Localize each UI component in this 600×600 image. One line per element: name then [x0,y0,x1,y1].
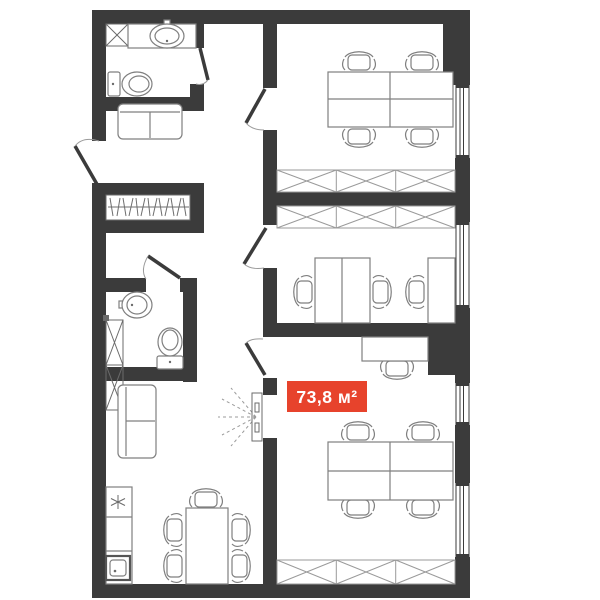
sink-icon [119,292,152,318]
desk-icon [428,258,455,323]
wall-divider-2 [263,130,277,225]
door-to-office-bottom-icon [246,339,265,375]
door-icon [196,48,208,85]
wall-corner-bottom-right [455,557,470,598]
wardrobe-rail-icon [106,195,190,220]
wall-office-top-mid [277,192,455,206]
sofa-icon [118,385,156,458]
desk-cluster-icon [328,442,453,500]
chair-icon [343,129,376,147]
wall-divider-1 [263,24,277,88]
shelving-icon [277,560,455,584]
corner-desk-icon [362,337,428,361]
wall-divider-4 [263,378,277,395]
sofa-icon [118,104,182,139]
chair-icon [164,550,182,583]
door-icon [143,256,180,279]
chair-icon [373,276,391,309]
dining-set [164,489,251,584]
chair-icon [406,52,439,70]
kitchen-zone [106,385,250,584]
shelving-icon [277,206,455,228]
wall-bath2-top-left [106,278,146,292]
wall-left-lower [92,185,106,598]
chair-icon [342,422,375,440]
wall-bath2-top-right [180,278,197,292]
wall-office-mid-bottom [277,323,428,337]
chair-icon [232,550,250,583]
shelving-icon [277,170,455,192]
wall-right-pier-3 [455,425,470,483]
dining-table-icon [186,508,228,584]
area-label: 73,8 м² [296,387,357,407]
chair-icon [407,422,440,440]
area-badge: 73,8 м² [287,381,367,412]
window-icon [456,483,469,557]
window-icon [456,85,469,158]
office-top [277,52,455,192]
toilet-icon [108,72,152,96]
wall-bottom [92,584,470,598]
desk-cluster-icon [328,72,453,127]
chair-icon [343,52,376,70]
chair-icon [406,276,424,309]
chair-icon [406,129,439,147]
chair-icon [190,489,223,507]
wall-divider-5 [263,438,277,584]
floor-plan: 73,8 м² [0,0,600,600]
office-middle [277,206,455,323]
wall-top [92,10,470,24]
door-to-office-top-icon [246,89,265,130]
window-icon [456,222,469,308]
kitchen-sink-icon [106,556,130,580]
chair-icon [232,514,250,547]
chair-icon [342,500,375,518]
chair-icon [164,514,182,547]
sliding-door-icon [218,388,262,446]
entry-door-icon [75,139,99,186]
wall-left-upper [92,10,106,141]
chair-icon [407,500,440,518]
floor-plan-canvas: 73,8 м² [0,0,600,600]
shaft-icon [106,24,128,46]
wall-pier-deep [428,323,470,375]
wall-right-pier-1 [455,158,470,222]
window-icon [456,383,469,425]
desk-pair-icon [315,258,370,323]
wall-closet-bottom [92,220,204,233]
wall-closet-top [92,183,204,195]
chair-icon [381,361,414,379]
toilet-icon [157,328,183,369]
chair-icon [294,276,312,309]
door-to-office-middle-icon [244,228,266,269]
wall-divider-3 [263,268,277,337]
